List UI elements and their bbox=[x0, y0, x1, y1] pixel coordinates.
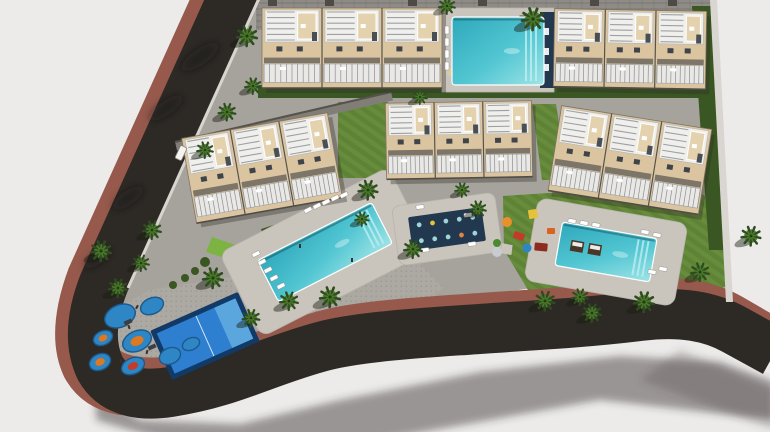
window bbox=[633, 159, 640, 165]
playground-item bbox=[502, 217, 512, 227]
window bbox=[396, 46, 402, 51]
window bbox=[616, 156, 623, 162]
window bbox=[200, 176, 207, 182]
chimney bbox=[590, 0, 599, 6]
person bbox=[120, 359, 122, 363]
window bbox=[667, 164, 674, 170]
window bbox=[684, 167, 691, 173]
chimney bbox=[268, 0, 277, 6]
playground-item bbox=[534, 242, 548, 251]
window bbox=[417, 46, 423, 51]
window bbox=[446, 139, 452, 144]
window bbox=[298, 159, 305, 165]
playground-item bbox=[528, 209, 538, 219]
window bbox=[583, 47, 589, 52]
site-plan-render bbox=[0, 0, 770, 432]
person bbox=[351, 258, 353, 262]
building-mid-center bbox=[385, 101, 536, 185]
playground-item bbox=[523, 244, 532, 253]
window bbox=[249, 167, 256, 173]
window bbox=[667, 48, 673, 53]
playground-item bbox=[547, 228, 555, 234]
window bbox=[398, 139, 404, 144]
chimney bbox=[478, 0, 487, 6]
window bbox=[276, 46, 282, 51]
lawn-patch bbox=[338, 102, 388, 178]
window bbox=[266, 165, 273, 171]
playground-item bbox=[492, 247, 502, 257]
playground-item bbox=[493, 239, 501, 247]
window bbox=[336, 46, 342, 51]
window bbox=[495, 138, 501, 143]
sun-lounger bbox=[445, 50, 449, 58]
chimney bbox=[325, 0, 334, 6]
chimney bbox=[408, 0, 417, 6]
window bbox=[357, 46, 363, 51]
window bbox=[685, 48, 691, 53]
sun-lounger bbox=[416, 204, 424, 209]
aerial-render-canvas bbox=[0, 0, 770, 432]
window bbox=[314, 156, 321, 162]
window bbox=[617, 47, 623, 52]
sun-platform bbox=[570, 240, 585, 253]
window bbox=[414, 139, 420, 144]
window bbox=[297, 46, 303, 51]
building-top-right bbox=[553, 9, 710, 95]
window bbox=[463, 138, 469, 143]
sun-lounger bbox=[445, 26, 449, 34]
window bbox=[634, 48, 640, 53]
window bbox=[566, 46, 572, 51]
sun-lounger bbox=[445, 62, 449, 70]
window bbox=[566, 148, 573, 154]
building-top-left bbox=[262, 8, 446, 93]
window bbox=[512, 137, 518, 142]
window bbox=[583, 151, 590, 157]
person bbox=[299, 244, 301, 248]
chimney bbox=[668, 0, 677, 6]
sun-lounger bbox=[468, 241, 476, 246]
window bbox=[217, 173, 224, 179]
sun-lounger bbox=[445, 38, 449, 46]
